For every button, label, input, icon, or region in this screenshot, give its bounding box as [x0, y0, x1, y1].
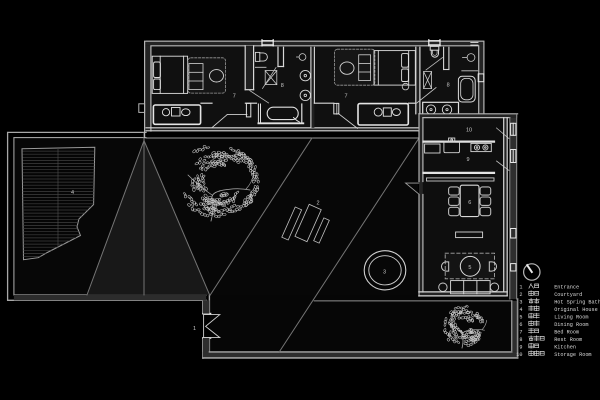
svg-text:8: 8: [519, 337, 522, 343]
svg-text:9: 9: [467, 157, 470, 163]
svg-text:9: 9: [519, 344, 522, 350]
svg-text:8: 8: [281, 83, 284, 89]
svg-text:6: 6: [468, 200, 471, 206]
svg-text:1: 1: [193, 326, 196, 332]
svg-text:4: 4: [71, 190, 74, 196]
svg-text:Hot Spring Bath: Hot Spring Bath: [554, 299, 600, 305]
svg-text:7: 7: [233, 94, 236, 100]
svg-text:Courtyard: Courtyard: [554, 292, 582, 298]
svg-text:3: 3: [383, 269, 386, 275]
svg-text:10: 10: [516, 352, 522, 358]
svg-text:6: 6: [519, 322, 522, 328]
svg-text:3: 3: [519, 299, 522, 305]
svg-text:Storage Room: Storage Room: [554, 352, 591, 358]
svg-text:Dining Room: Dining Room: [554, 322, 588, 328]
svg-text:Kitchen: Kitchen: [554, 344, 576, 350]
svg-text:2: 2: [317, 201, 320, 207]
svg-text:7: 7: [519, 329, 522, 335]
svg-text:4: 4: [519, 307, 522, 313]
svg-text:5: 5: [468, 265, 471, 271]
svg-text:1: 1: [519, 284, 522, 290]
svg-text:10: 10: [466, 127, 472, 133]
svg-text:Entrance: Entrance: [554, 284, 579, 290]
svg-text:5: 5: [519, 314, 522, 320]
svg-text:Original House: Original House: [554, 307, 598, 313]
svg-text:Rest Room: Rest Room: [554, 337, 582, 343]
svg-text:7: 7: [345, 94, 348, 100]
svg-text:8: 8: [447, 82, 450, 88]
svg-text:2: 2: [519, 292, 522, 298]
svg-text:Living Room: Living Room: [554, 314, 588, 320]
svg-text:Bed Room: Bed Room: [554, 329, 579, 335]
